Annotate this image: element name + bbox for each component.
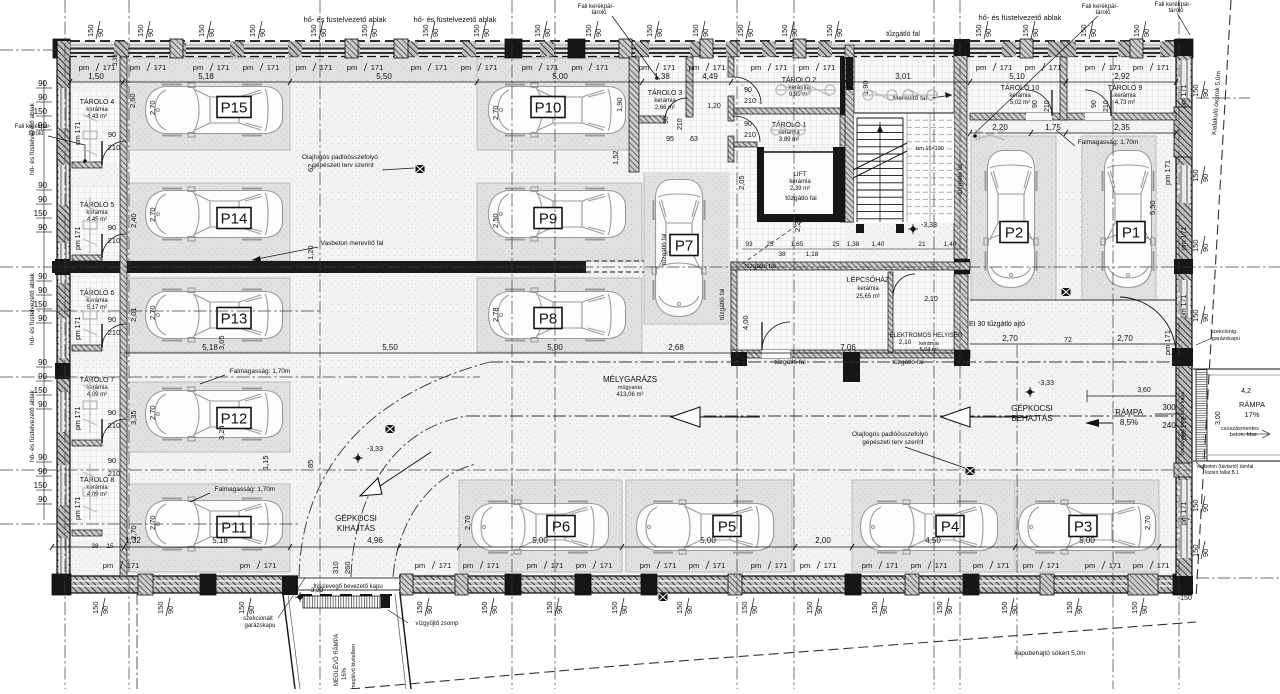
- svg-text:17%: 17%: [1244, 410, 1259, 419]
- svg-text:150: 150: [935, 601, 944, 614]
- svg-text:63: 63: [690, 136, 698, 143]
- svg-text:90: 90: [108, 408, 116, 417]
- svg-text:gépészeti terv szerint: gépészeti terv szerint: [312, 162, 374, 169]
- svg-text:TÁROLÓ 9: TÁROLÓ 9: [1108, 83, 1143, 92]
- svg-text:90: 90: [38, 286, 47, 295]
- svg-text:171: 171: [487, 561, 500, 570]
- svg-text:90: 90: [38, 195, 47, 204]
- svg-text:pm: pm: [1025, 63, 1035, 72]
- svg-text:Olajfogós padlóösszefolyó: Olajfogós padlóösszefolyó: [302, 154, 378, 161]
- svg-text:pm: pm: [79, 63, 89, 72]
- svg-text:Fali kerékpár-: Fali kerékpár-: [15, 124, 52, 130]
- svg-text:1,52: 1,52: [611, 150, 620, 165]
- svg-text:5,50: 5,50: [376, 72, 392, 81]
- svg-text:3,05: 3,05: [217, 335, 226, 350]
- svg-text:pm: pm: [640, 561, 650, 570]
- svg-text:pm: pm: [862, 561, 872, 570]
- svg-text:150: 150: [805, 601, 814, 614]
- svg-text:150: 150: [156, 601, 165, 614]
- svg-text:171: 171: [127, 561, 140, 570]
- svg-text:Falmagasság: 1,70m: Falmagasság: 1,70m: [1078, 139, 1139, 146]
- svg-text:210: 210: [677, 118, 684, 130]
- svg-text:171: 171: [264, 561, 277, 570]
- svg-text:pm: pm: [689, 63, 699, 72]
- svg-text:pm: pm: [243, 63, 253, 72]
- svg-text:bm 15×190: bm 15×190: [916, 146, 944, 152]
- svg-text:pm: pm: [800, 561, 810, 570]
- svg-text:150: 150: [533, 24, 542, 37]
- svg-text:pm: pm: [976, 63, 986, 72]
- svg-text:kerámia: kerámia: [857, 286, 879, 292]
- svg-text:171: 171: [1157, 561, 1170, 570]
- svg-text:95: 95: [666, 136, 674, 143]
- svg-text:P1: P1: [1122, 225, 1140, 242]
- svg-text:90: 90: [108, 315, 116, 324]
- svg-text:TÁROLÓ 5: TÁROLÓ 5: [80, 200, 115, 209]
- svg-text:pm: pm: [1085, 63, 1095, 72]
- svg-text:2,60: 2,60: [128, 93, 137, 108]
- svg-text:3,35: 3,35: [129, 410, 138, 425]
- svg-text:pm: pm: [461, 63, 471, 72]
- svg-text:3,01: 3,01: [895, 72, 911, 81]
- svg-text:2,10: 2,10: [899, 339, 912, 346]
- svg-text:RÁMPA: RÁMPA: [1239, 400, 1265, 409]
- svg-text:171: 171: [775, 561, 788, 570]
- svg-text:171: 171: [713, 63, 726, 72]
- svg-text:150: 150: [1065, 601, 1074, 614]
- svg-text:pm: pm: [751, 63, 761, 72]
- svg-text:pm: pm: [1133, 63, 1143, 72]
- svg-text:25,65 m²: 25,65 m²: [856, 294, 880, 300]
- svg-text:171: 171: [371, 63, 384, 72]
- svg-text:P5: P5: [718, 519, 736, 536]
- svg-text:300: 300: [1162, 403, 1176, 412]
- svg-text:150: 150: [675, 601, 684, 614]
- svg-text:171: 171: [596, 63, 609, 72]
- svg-text:pm 171: pm 171: [1181, 295, 1188, 318]
- svg-text:5,00: 5,00: [532, 536, 548, 545]
- svg-text:pm: pm: [240, 561, 250, 570]
- svg-text:1,20: 1,20: [707, 103, 721, 110]
- svg-text:P12: P12: [221, 411, 248, 428]
- svg-text:171: 171: [435, 63, 448, 72]
- svg-text:pm: pm: [572, 63, 582, 72]
- svg-text:garázskapu: garázskapu: [244, 623, 275, 629]
- svg-text:150: 150: [1191, 239, 1200, 252]
- svg-text:pm 171: pm 171: [75, 122, 82, 145]
- svg-text:2,70: 2,70: [148, 405, 157, 420]
- svg-text:72: 72: [1064, 337, 1072, 344]
- svg-text:kerámia: kerámia: [654, 98, 676, 104]
- svg-text:P10: P10: [535, 100, 562, 117]
- svg-text:171: 171: [439, 561, 452, 570]
- svg-text:150: 150: [1191, 499, 1200, 512]
- svg-text:1,90: 1,90: [615, 97, 624, 112]
- svg-text:5,02 m²: 5,02 m²: [1010, 100, 1030, 106]
- svg-text:-3,33: -3,33: [367, 446, 383, 453]
- svg-text:pm: pm: [527, 561, 537, 570]
- svg-text:210: 210: [108, 143, 121, 152]
- svg-text:pm 171: pm 171: [75, 227, 82, 250]
- svg-text:171: 171: [1047, 561, 1060, 570]
- svg-text:pm: pm: [411, 63, 421, 72]
- svg-text:P3: P3: [1074, 519, 1092, 536]
- svg-text:90: 90: [108, 130, 116, 139]
- svg-text:Vasbeton merevítő fal: Vasbeton merevítő fal: [321, 240, 384, 247]
- svg-text:150: 150: [480, 601, 489, 614]
- svg-text:90: 90: [38, 372, 47, 381]
- svg-text:hő- és füstelvezető ablak: hő- és füstelvezető ablak: [979, 13, 1062, 22]
- svg-text:tűzgátló fal: tűzgátló fal: [744, 263, 776, 270]
- svg-text:pm: pm: [911, 561, 921, 570]
- svg-text:hő- és füstelvezető ablak: hő- és füstelvezető ablak: [414, 15, 497, 24]
- svg-text:pm: pm: [1085, 561, 1095, 570]
- svg-text:5,50: 5,50: [1148, 200, 1157, 215]
- svg-text:210: 210: [108, 469, 121, 478]
- svg-text:garázskapu: garázskapu: [1212, 336, 1240, 342]
- svg-text:EI 30 tűzgátló ajtó: EI 30 tűzgátló ajtó: [969, 321, 1025, 328]
- svg-text:4,73 m²: 4,73 m²: [1115, 100, 1135, 106]
- svg-text:pm: pm: [1023, 561, 1033, 570]
- svg-text:tároló: tároló: [591, 10, 607, 16]
- svg-text:1,65: 1,65: [791, 241, 804, 248]
- svg-text:90: 90: [744, 87, 752, 94]
- svg-text:93: 93: [745, 241, 753, 248]
- svg-text:P6: P6: [552, 519, 570, 536]
- svg-text:2,70: 2,70: [148, 207, 157, 222]
- svg-text:210: 210: [744, 132, 756, 139]
- svg-text:pm: pm: [751, 561, 761, 570]
- svg-text:7,06: 7,06: [840, 343, 856, 352]
- svg-text:hő- és füstelvezető ablak: hő- és füstelvezető ablak: [304, 15, 387, 24]
- svg-text:tűzgátló fal: tűzgátló fal: [892, 359, 924, 366]
- svg-text:Falmagasság: 1,70m: Falmagasság: 1,70m: [230, 368, 291, 375]
- svg-text:171: 171: [103, 63, 116, 72]
- svg-text:5,10: 5,10: [1009, 72, 1025, 81]
- svg-text:4,2: 4,2: [1241, 388, 1251, 395]
- svg-text:beton, fdsz.: beton, fdsz.: [1230, 432, 1259, 438]
- svg-text:tűzgátló fal: tűzgátló fal: [957, 163, 964, 195]
- svg-text:150: 150: [740, 601, 749, 614]
- svg-text:4,49: 4,49: [702, 72, 718, 81]
- svg-text:1,40: 1,40: [872, 241, 885, 248]
- svg-text:pm 171: pm 171: [75, 317, 82, 340]
- svg-text:pm: pm: [296, 63, 306, 72]
- svg-text:2,39 m²: 2,39 m²: [790, 186, 810, 192]
- svg-text:150: 150: [870, 601, 879, 614]
- svg-text:5,00: 5,00: [552, 72, 568, 81]
- svg-text:150: 150: [472, 24, 481, 37]
- svg-text:Falmagasság: 1,70m: Falmagasság: 1,70m: [215, 486, 276, 493]
- svg-text:210: 210: [1044, 100, 1051, 112]
- svg-text:150: 150: [237, 601, 246, 614]
- svg-text:MÉLYGARÁZS: MÉLYGARÁZS: [603, 375, 657, 384]
- svg-text:150: 150: [360, 24, 369, 37]
- svg-text:90: 90: [38, 453, 47, 462]
- svg-text:150: 150: [421, 24, 430, 37]
- svg-text:2,70: 2,70: [491, 105, 500, 120]
- svg-text:tűzgátló fal: tűzgátló fal: [719, 288, 726, 320]
- svg-text:150: 150: [1191, 309, 1200, 322]
- svg-text:gépészeti terv szerint: gépészeti terv szerint: [862, 439, 924, 446]
- svg-text:5,18: 5,18: [202, 343, 218, 352]
- svg-text:240: 240: [1162, 421, 1176, 430]
- svg-text:szekcionált: szekcionált: [243, 616, 273, 622]
- svg-text:-3,33: -3,33: [921, 222, 937, 229]
- svg-text:2,70: 2,70: [1002, 334, 1018, 343]
- svg-text:pm: pm: [973, 561, 983, 570]
- svg-text:210: 210: [108, 236, 121, 245]
- svg-text:171: 171: [320, 63, 333, 72]
- svg-text:8,5%: 8,5%: [1120, 418, 1138, 427]
- svg-text:P9: P9: [539, 211, 557, 228]
- svg-text:2,66 m²: 2,66 m²: [655, 105, 675, 111]
- svg-text:85: 85: [306, 460, 315, 468]
- svg-text:pm: pm: [103, 561, 113, 570]
- svg-text:171: 171: [1109, 561, 1122, 570]
- svg-text:150: 150: [1191, 169, 1200, 182]
- svg-text:3,24: 3,24: [217, 425, 226, 440]
- svg-text:150: 150: [610, 601, 619, 614]
- svg-text:260: 260: [343, 561, 352, 574]
- svg-text:2,10: 2,10: [924, 296, 938, 303]
- svg-text:kerámia: kerámia: [789, 179, 811, 185]
- svg-text:150: 150: [825, 24, 834, 37]
- svg-text:kizáró fallal B.1: kizáró fallal B.1: [1205, 470, 1239, 476]
- svg-text:1,50: 1,50: [88, 72, 104, 81]
- svg-text:pm 171: pm 171: [75, 497, 82, 520]
- svg-text:pm: pm: [799, 63, 809, 72]
- svg-text:szekcionig.: szekcionig.: [1210, 329, 1238, 335]
- svg-text:150: 150: [691, 24, 700, 37]
- svg-text:3,89 m²: 3,89 m²: [779, 137, 799, 143]
- svg-text:150: 150: [584, 24, 593, 37]
- svg-text:171: 171: [664, 561, 677, 570]
- svg-text:2,20: 2,20: [992, 123, 1008, 132]
- svg-text:150: 150: [309, 24, 318, 37]
- svg-text:3,60: 3,60: [1137, 387, 1151, 394]
- svg-text:MEGLÉVŐ RÁMPA: MEGLÉVŐ RÁMPA: [333, 634, 340, 686]
- svg-text:TÁROLÓ 3: TÁROLÓ 3: [648, 88, 683, 97]
- svg-text:171: 171: [997, 561, 1010, 570]
- svg-text:2,92: 2,92: [1114, 72, 1130, 81]
- svg-text:5,00: 5,00: [700, 536, 716, 545]
- svg-text:90: 90: [38, 400, 47, 409]
- svg-text:3,00: 3,00: [1215, 411, 1222, 425]
- svg-text:pm: pm: [347, 63, 357, 72]
- svg-text:2,70: 2,70: [148, 100, 157, 115]
- svg-text:150: 150: [1130, 601, 1139, 614]
- svg-text:90: 90: [38, 93, 47, 102]
- svg-text:171: 171: [775, 63, 788, 72]
- svg-text:kerámia: kerámia: [1114, 93, 1136, 99]
- svg-text:P14: P14: [221, 211, 248, 228]
- svg-text:TÁROLÓ 7: TÁROLÓ 7: [80, 375, 115, 384]
- svg-text:GÉPKOCSI: GÉPKOCSI: [1011, 404, 1053, 413]
- svg-text:1,38: 1,38: [847, 241, 860, 248]
- svg-text:pm: pm: [1133, 561, 1143, 570]
- svg-text:hő- és füstelvezető ablak: hő- és füstelvezető ablak: [29, 272, 36, 345]
- svg-text:150: 150: [1191, 84, 1200, 97]
- svg-text:150: 150: [780, 24, 789, 37]
- svg-text:5,18: 5,18: [198, 72, 214, 81]
- svg-text:171: 171: [217, 63, 230, 72]
- svg-text:2,68: 2,68: [668, 343, 684, 352]
- svg-text:90: 90: [744, 121, 752, 128]
- svg-text:P11: P11: [221, 520, 247, 537]
- svg-text:pm: pm: [463, 561, 473, 570]
- svg-text:pm 171: pm 171: [1181, 85, 1188, 108]
- svg-text:2,70: 2,70: [129, 525, 138, 540]
- svg-text:pm 171: pm 171: [1181, 227, 1188, 250]
- svg-text:5,00: 5,00: [1079, 536, 1095, 545]
- svg-text:hő- és füstelvezető ablak: hő- és füstelvezető ablak: [29, 102, 36, 175]
- svg-text:5,04 m²: 5,04 m²: [920, 347, 939, 353]
- svg-text:frisslevegő bevezető kapu: frisslevegő bevezető kapu: [313, 584, 382, 590]
- svg-text:RÁMPA: RÁMPA: [1115, 408, 1144, 417]
- svg-text:90: 90: [38, 181, 47, 190]
- svg-text:BEHAJTÁS: BEHAJTÁS: [1011, 414, 1052, 423]
- svg-text:pm 171: pm 171: [1163, 160, 1172, 185]
- svg-text:tároló: tároló: [1168, 8, 1184, 14]
- svg-text:150: 150: [645, 24, 654, 37]
- svg-text:90: 90: [1091, 100, 1098, 108]
- svg-text:TÁROLÓ 10: TÁROLÓ 10: [1001, 83, 1040, 92]
- svg-text:90: 90: [1032, 100, 1039, 108]
- svg-text:90: 90: [38, 223, 47, 232]
- svg-text:pm: pm: [522, 63, 532, 72]
- svg-text:frisslevegő bevezető kapu: frisslevegő bevezető kapu: [1180, 391, 1186, 455]
- svg-text:2,70: 2,70: [1143, 515, 1152, 530]
- svg-text:171: 171: [154, 63, 167, 72]
- svg-text:ELEKTROMOS HELYISÉG: ELEKTROMOS HELYISÉG: [890, 332, 963, 339]
- svg-text:171: 171: [823, 63, 836, 72]
- svg-text:pm 171: pm 171: [1181, 502, 1188, 525]
- svg-text:150: 150: [248, 24, 257, 37]
- svg-text:TÁROLÓ 2: TÁROLÓ 2: [782, 75, 817, 84]
- svg-text:150: 150: [34, 481, 48, 490]
- svg-text:2,78: 2,78: [491, 307, 500, 322]
- svg-text:150: 150: [1132, 24, 1141, 37]
- svg-text:tűzgátló fal: tűzgátló fal: [785, 195, 817, 202]
- svg-text:Kialakuló övárok 5,0m: Kialakuló övárok 5,0m: [1211, 71, 1222, 135]
- svg-text:2,50: 2,50: [491, 213, 500, 228]
- svg-text:90: 90: [38, 467, 47, 476]
- svg-text:2,70: 2,70: [148, 515, 157, 530]
- svg-text:Olajfogós padlóösszefolyó: Olajfogós padlóösszefolyó: [852, 431, 928, 438]
- svg-text:pm: pm: [576, 561, 586, 570]
- svg-text:-3,33: -3,33: [1038, 380, 1054, 387]
- svg-text:tűzgátló fal: tűzgátló fal: [774, 359, 806, 366]
- svg-text:150: 150: [415, 601, 424, 614]
- svg-text:2,70: 2,70: [463, 515, 472, 530]
- svg-text:tűzgátló fal: tűzgátló fal: [886, 31, 920, 38]
- svg-text:1,15: 1,15: [261, 455, 270, 470]
- svg-text:25: 25: [832, 241, 840, 248]
- svg-text:150: 150: [1180, 595, 1192, 602]
- svg-text:171: 171: [824, 561, 837, 570]
- svg-text:KIHAJTÁS: KIHAJTÁS: [337, 524, 375, 533]
- svg-text:4,00: 4,00: [741, 315, 750, 330]
- svg-text:1,90: 1,90: [861, 80, 870, 95]
- svg-text:2,22: 2,22: [793, 217, 802, 232]
- svg-text:tűzgátló fal: tűzgátló fal: [661, 233, 668, 265]
- svg-text:2,35: 2,35: [1114, 123, 1130, 132]
- svg-text:171: 171: [663, 63, 676, 72]
- svg-text:-3,33: -3,33: [309, 587, 324, 594]
- svg-text:413,06 m²: 413,06 m²: [616, 392, 643, 398]
- svg-text:kapubehajtó sökért 5,0m: kapubehajtó sökért 5,0m: [1014, 650, 1085, 657]
- svg-text:kerámia: kerámia: [1009, 93, 1031, 99]
- svg-text:210: 210: [108, 421, 121, 430]
- svg-text:hő- és füstelvezető ablak: hő- és füstelvezető ablak: [29, 389, 36, 462]
- svg-text:2,70: 2,70: [148, 305, 157, 320]
- svg-text:P8: P8: [539, 311, 557, 328]
- svg-text:171: 171: [1000, 63, 1013, 72]
- svg-text:90: 90: [38, 272, 47, 281]
- svg-text:150: 150: [136, 24, 145, 37]
- svg-text:4,96: 4,96: [367, 536, 383, 545]
- svg-text:150: 150: [1021, 24, 1030, 37]
- svg-text:TÁROLÓ 4: TÁROLÓ 4: [80, 97, 115, 106]
- svg-text:5,00: 5,00: [547, 343, 563, 352]
- svg-text:38: 38: [91, 543, 99, 550]
- svg-text:pm 171: pm 171: [75, 407, 82, 430]
- svg-text:90: 90: [38, 358, 47, 367]
- svg-text:GÉPKOCSI: GÉPKOCSI: [335, 514, 377, 523]
- svg-text:90: 90: [108, 223, 116, 232]
- svg-text:1,40: 1,40: [944, 241, 957, 248]
- svg-text:4,50: 4,50: [925, 536, 941, 545]
- svg-text:LÉPCSŐHÁZ: LÉPCSŐHÁZ: [847, 275, 890, 284]
- svg-text:P2: P2: [1005, 225, 1023, 242]
- svg-text:pm: pm: [415, 561, 425, 570]
- svg-text:2,40: 2,40: [129, 213, 138, 228]
- svg-text:2,05: 2,05: [737, 175, 746, 190]
- svg-text:P15: P15: [221, 100, 248, 117]
- svg-text:90: 90: [108, 456, 116, 465]
- svg-text:2,01: 2,01: [129, 307, 138, 322]
- svg-text:2,00: 2,00: [815, 536, 831, 545]
- svg-text:90: 90: [38, 79, 47, 88]
- svg-text:150: 150: [545, 601, 554, 614]
- svg-text:171: 171: [713, 561, 726, 570]
- svg-text:171: 171: [546, 63, 559, 72]
- svg-text:P13: P13: [221, 311, 248, 328]
- svg-text:P4: P4: [941, 519, 959, 536]
- svg-text:310: 310: [331, 561, 340, 574]
- svg-text:21: 21: [918, 241, 926, 248]
- svg-text:tároló: tároló: [1095, 10, 1111, 16]
- svg-text:műgyanta: műgyanta: [618, 385, 643, 391]
- svg-text:5,18: 5,18: [212, 536, 228, 545]
- svg-text:15%: 15%: [342, 667, 348, 680]
- svg-text:2,70: 2,70: [1117, 334, 1133, 343]
- svg-text:1,75: 1,75: [1045, 123, 1061, 132]
- svg-text:171: 171: [886, 561, 899, 570]
- svg-text:pm: pm: [689, 561, 699, 570]
- svg-text:LIFT: LIFT: [793, 171, 806, 178]
- svg-text:pm: pm: [130, 63, 140, 72]
- svg-text:171: 171: [935, 561, 948, 570]
- svg-text:tároló: tároló: [28, 131, 44, 137]
- svg-text:171: 171: [1049, 63, 1062, 72]
- svg-text:pm 171: pm 171: [1163, 330, 1172, 355]
- svg-text:90: 90: [38, 314, 47, 323]
- svg-text:150: 150: [974, 24, 983, 37]
- svg-text:171: 171: [267, 63, 280, 72]
- svg-text:38: 38: [778, 251, 786, 258]
